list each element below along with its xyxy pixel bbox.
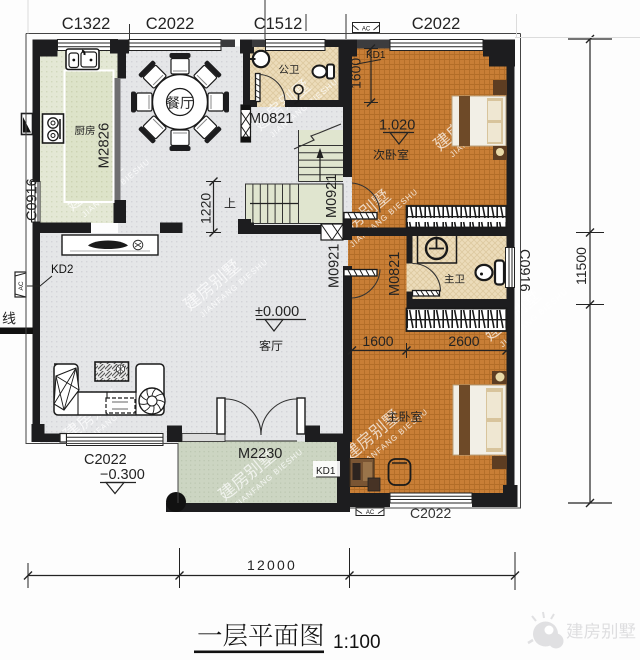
svg-text:C0916: C0916: [25, 178, 41, 221]
svg-text:1600: 1600: [362, 333, 393, 349]
svg-text:1:100: 1:100: [333, 632, 381, 653]
svg-text:M2826: M2826: [96, 123, 113, 169]
svg-text:M2230: M2230: [238, 446, 282, 462]
svg-text:KD2: KD2: [51, 264, 73, 276]
svg-text:C2022: C2022: [410, 505, 451, 521]
svg-text:1220: 1220: [198, 193, 214, 224]
svg-text:11500: 11500: [573, 247, 589, 285]
svg-text:KD1: KD1: [366, 50, 386, 61]
svg-text:−0.300: −0.300: [100, 467, 145, 483]
svg-text:1600: 1600: [348, 58, 364, 89]
svg-text:C0916: C0916: [516, 249, 532, 292]
svg-text:2600: 2600: [448, 333, 479, 349]
svg-text:12000: 12000: [247, 557, 297, 573]
svg-text:M0921: M0921: [324, 174, 340, 218]
svg-text:AC: AC: [362, 27, 371, 33]
svg-text:KD1: KD1: [316, 466, 336, 477]
svg-text:1.020: 1.020: [379, 118, 415, 134]
svg-text:C2022: C2022: [146, 15, 195, 33]
svg-text:M0921: M0921: [327, 244, 343, 288]
svg-text:C2022: C2022: [84, 452, 127, 468]
svg-text:M0821: M0821: [387, 252, 403, 296]
svg-text:C1512: C1512: [254, 15, 303, 33]
svg-text:AC: AC: [366, 510, 375, 516]
svg-text:C1322: C1322: [62, 15, 111, 33]
svg-text:±0.000: ±0.000: [255, 304, 299, 320]
svg-text:C2022: C2022: [412, 15, 461, 33]
svg-text:AC: AC: [18, 281, 25, 290]
svg-text:M0821: M0821: [249, 111, 293, 127]
